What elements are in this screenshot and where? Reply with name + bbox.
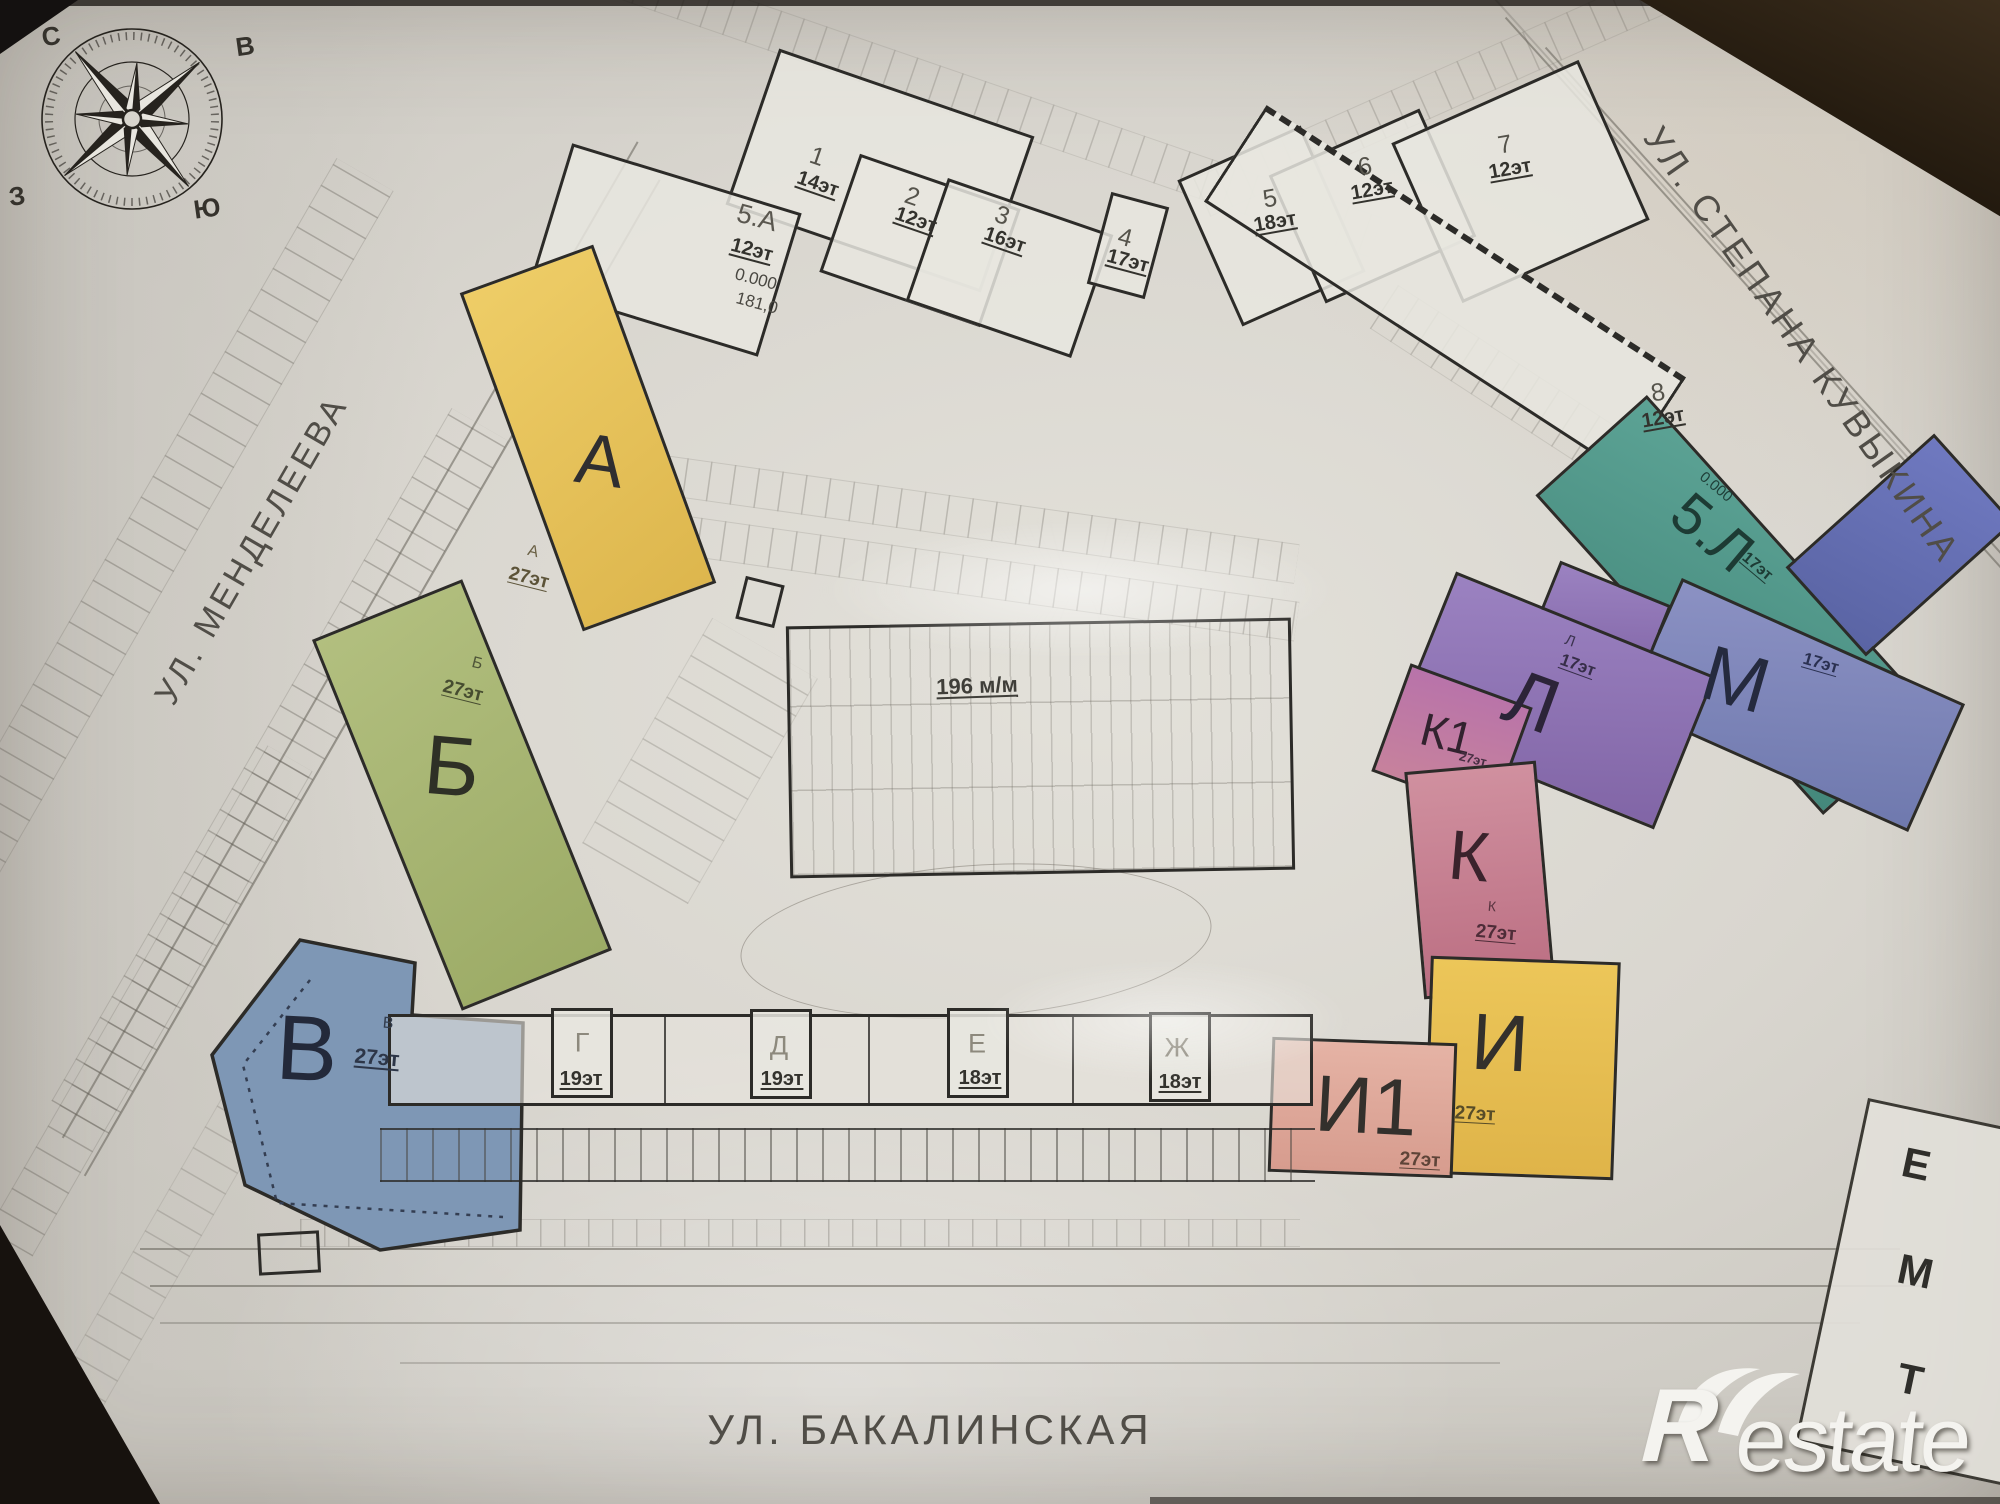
building-b-letter: Б: [421, 722, 483, 810]
building-i-letter: И: [1469, 1002, 1531, 1085]
building-a-floors: 27эт: [507, 564, 551, 592]
site-plan: 196 м/м 1 14эт 2 12эт 3 16эт 4 17эт 5 18…: [0, 0, 2000, 1504]
building-k-letter: К: [1446, 819, 1493, 892]
entrance-steps: [257, 1230, 321, 1275]
legend-row-e: Е: [1898, 1138, 1935, 1191]
parking-hatch-west-1: [0, 158, 394, 884]
stylobate-divider-2: [868, 1014, 870, 1106]
road-edge-bakalinskaya-4: [400, 1362, 1500, 1364]
compass-west-label: З: [7, 182, 27, 210]
hatch-courtyard-west: [582, 618, 818, 904]
compass-star-icon: [37, 24, 227, 214]
street-bakalinskaya: УЛ. БАКАЛИНСКАЯ: [707, 1406, 1152, 1454]
road-edge-bakalinskaya-2: [150, 1285, 1930, 1287]
building-k-floors: 27эт: [1475, 922, 1517, 944]
building-d-letter: Д: [770, 1033, 788, 1060]
legend-row-m: М: [1893, 1245, 1937, 1299]
watermark-glare-2: [980, 960, 1350, 1080]
road-edge-bakalinskaya-3: [160, 1322, 1860, 1324]
brand-letter-r: R: [1631, 1374, 1732, 1478]
building-i1-floors: 27эт: [1399, 1149, 1441, 1170]
brand-name-rest: estate: [1731, 1394, 1973, 1486]
building-g-letter: Г: [575, 1030, 590, 1057]
building-v-small-letter: В: [382, 1016, 394, 1033]
compass-south-label: Ю: [192, 193, 222, 222]
building-a-letter: А: [571, 422, 629, 500]
building-8-floors: 12эт: [1640, 404, 1686, 431]
parking-capacity-label: 196 м/м: [936, 674, 1018, 699]
south-parking-strip: [380, 1128, 1315, 1182]
building-k-small-letter: К: [1487, 899, 1496, 914]
utility-block-2: [735, 576, 784, 628]
building-g-floors: 19эт: [560, 1069, 603, 1089]
compass-east-label: В: [234, 32, 256, 60]
compass-rose: С В Ю З: [15, 10, 255, 228]
building-d-floors: 19эт: [761, 1069, 804, 1089]
brand-watermark: R estate: [1610, 1360, 2000, 1504]
compass-north-label: С: [40, 22, 62, 50]
building-i-floors: 27эт: [1454, 1103, 1496, 1124]
building-v-floors: 27эт: [354, 1046, 401, 1071]
stylobate-divider-1: [664, 1014, 666, 1106]
photo-corner-top-right: [1600, 0, 2000, 235]
building-v-letter: В: [274, 1001, 340, 1096]
watermark-glare-1: [820, 520, 1340, 660]
building-a-small-letter: А: [526, 543, 540, 561]
